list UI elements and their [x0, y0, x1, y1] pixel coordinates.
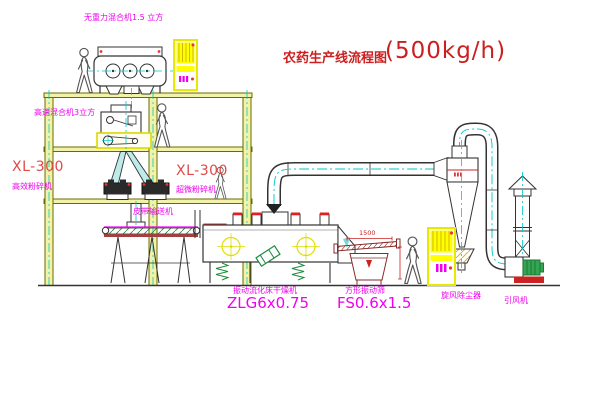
induced-draft-fan — [505, 257, 544, 283]
label-induced-draft-fan: 引风机 — [504, 297, 528, 305]
person-top-floor — [77, 48, 93, 92]
label-pulverizer-right-model: XL-300 — [176, 164, 228, 178]
drawing-title-capacity: (500kg/h) — [385, 40, 506, 63]
label-pulverizer-left-model: XL-300 — [12, 160, 64, 174]
label-cyclone-dust-collector: 旋风除尘器 — [441, 292, 481, 300]
process-flow-drawing: 农药生产线流程图 (500kg/h) 无重力混合机1.5 立方 高速混合机3立方… — [0, 0, 600, 403]
fluid-bed-dryer — [195, 210, 355, 283]
label-belt-conveyor: 皮带输送机 — [133, 208, 173, 216]
label-dryer-model: ZLG6x0.75 — [227, 296, 309, 311]
control-cabinet-right — [428, 228, 455, 285]
pulverizer-left — [104, 180, 131, 200]
control-cabinet-top — [174, 40, 197, 90]
label-high-speed-mixer: 高速混合机3立方 — [34, 109, 95, 117]
label-pulverizer-left-name: 高效粉碎机 — [12, 183, 52, 191]
high-speed-mixer — [97, 101, 151, 151]
drawing-title: 农药生产线流程图 — [283, 52, 387, 65]
gravity-free-mixer — [85, 47, 175, 108]
label-gravity-free-mixer: 无重力混合机1.5 立方 — [84, 14, 163, 22]
dimension-screen-length: 1500 — [359, 230, 376, 237]
label-screen-model: FS0.6x1.5 — [337, 296, 411, 311]
dryer-air-duct — [266, 158, 448, 215]
pulverizer-right — [142, 180, 169, 200]
person-ground-floor — [405, 237, 421, 283]
label-pulverizer-right-name: 超微粉碎机 — [176, 186, 216, 194]
y-duct — [111, 152, 154, 184]
